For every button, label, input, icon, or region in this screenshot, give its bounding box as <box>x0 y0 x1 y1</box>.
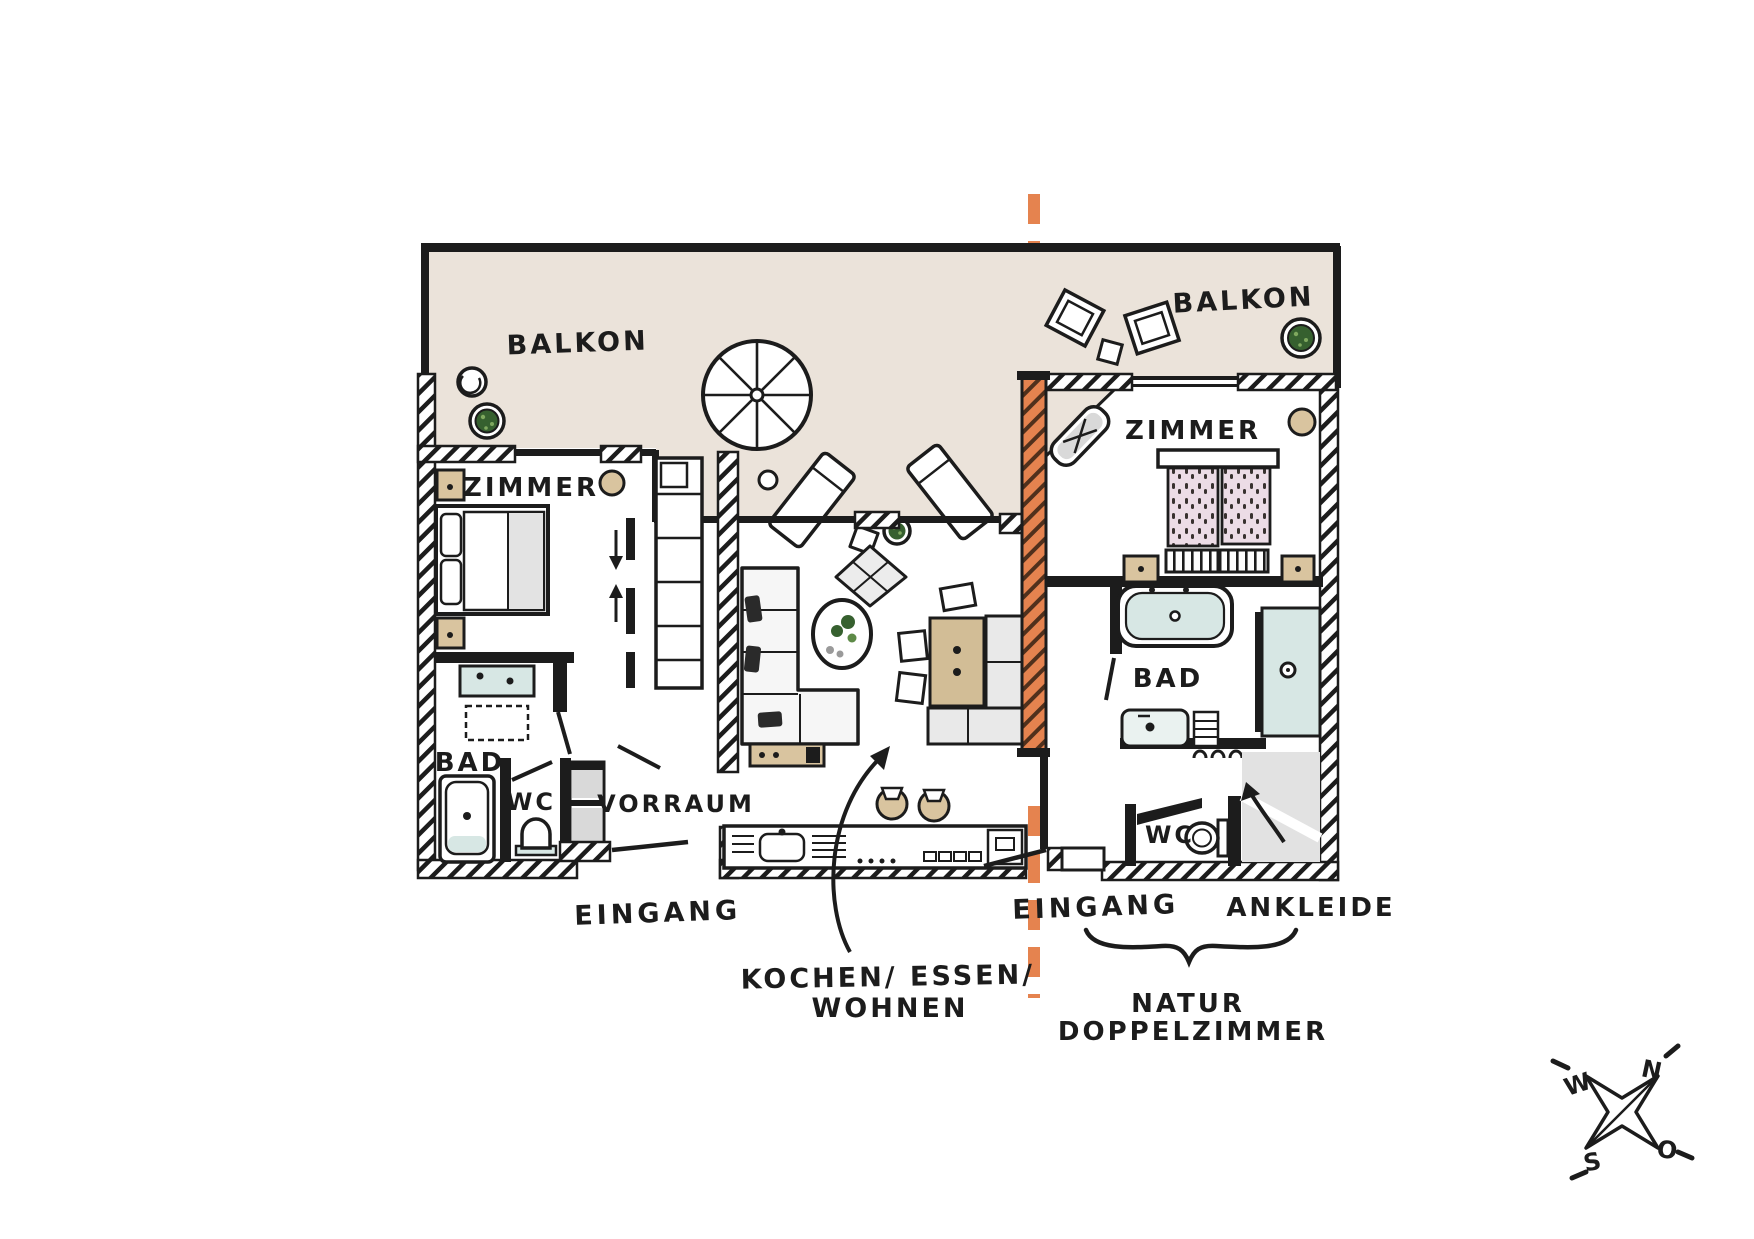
wardrobe-icon <box>656 458 702 688</box>
towel-ladder-icon <box>1194 712 1218 746</box>
label-dressing: ANKLEIDE <box>1226 893 1395 923</box>
bar-stool-icon <box>919 790 949 821</box>
floor-plan-sketch: BALKON BALKON ZIMMER ZIMMER BAD BAD WC W… <box>0 0 1754 1239</box>
wall-bottom-right <box>1102 862 1338 880</box>
dining-table-icon <box>930 618 984 706</box>
label-bath-right: BAD <box>1133 664 1204 694</box>
bath-rug-icon <box>466 706 528 740</box>
double-bed-icon <box>1158 450 1278 572</box>
parasol-icon <box>703 341 811 449</box>
entrance-step <box>560 842 610 861</box>
label-balcony-left: BALKON <box>506 326 649 362</box>
floor-plan-canvas: BALKON BALKON ZIMMER ZIMMER BAD BAD WC W… <box>0 0 1754 1239</box>
label-wc-right: WC <box>1145 821 1195 849</box>
entrance-step <box>1062 848 1104 870</box>
washbasin-icon <box>460 666 534 696</box>
shower-icon <box>1255 608 1320 736</box>
dressing-area <box>1241 752 1320 862</box>
wall-divider-hatched <box>718 452 738 772</box>
label-entrance-right: EINGANG <box>1012 889 1180 926</box>
label-bedroom-left: ZIMMER <box>463 473 599 503</box>
label-living-line1: KOCHEN/ ESSEN/ <box>740 959 1035 995</box>
coffee-table-icon <box>813 600 871 668</box>
wall-right-hatched <box>1320 385 1338 880</box>
tv-sideboard-icon <box>750 744 824 766</box>
stool-icon <box>600 471 624 495</box>
side-table-icon <box>1098 340 1122 364</box>
sink-icon <box>760 834 804 861</box>
label-hallway: VORRAUM <box>597 790 755 818</box>
bar-stool-icon <box>877 788 907 819</box>
double-bed-icon <box>436 506 548 614</box>
label-bedroom-right: ZIMMER <box>1125 416 1261 446</box>
chair-icon <box>899 631 928 662</box>
bathtub-icon <box>1118 586 1232 646</box>
label-living-line2: WOHNEN <box>812 993 969 1024</box>
bench-icon <box>928 708 1022 744</box>
wall-bottom-left <box>418 860 577 878</box>
stool-icon <box>940 583 975 610</box>
chair-icon <box>896 673 925 704</box>
compass-east-label: O <box>1655 1135 1679 1166</box>
label-unit-name-line1: NATUR <box>1131 989 1245 1019</box>
shower-icon <box>440 776 494 862</box>
kitchen-counter <box>724 826 1026 868</box>
label-unit-name-line2: DOPPELZIMMER <box>1058 1017 1328 1047</box>
wall-top <box>421 243 1340 252</box>
label-entrance-left: EINGANG <box>574 895 742 932</box>
washbasin-icon <box>1122 710 1188 746</box>
stool-icon <box>1289 409 1315 435</box>
side-table-icon <box>759 471 777 489</box>
page-background <box>0 0 1754 1239</box>
label-bath-left: BAD <box>435 748 506 778</box>
label-wc-left: WC <box>506 788 556 816</box>
